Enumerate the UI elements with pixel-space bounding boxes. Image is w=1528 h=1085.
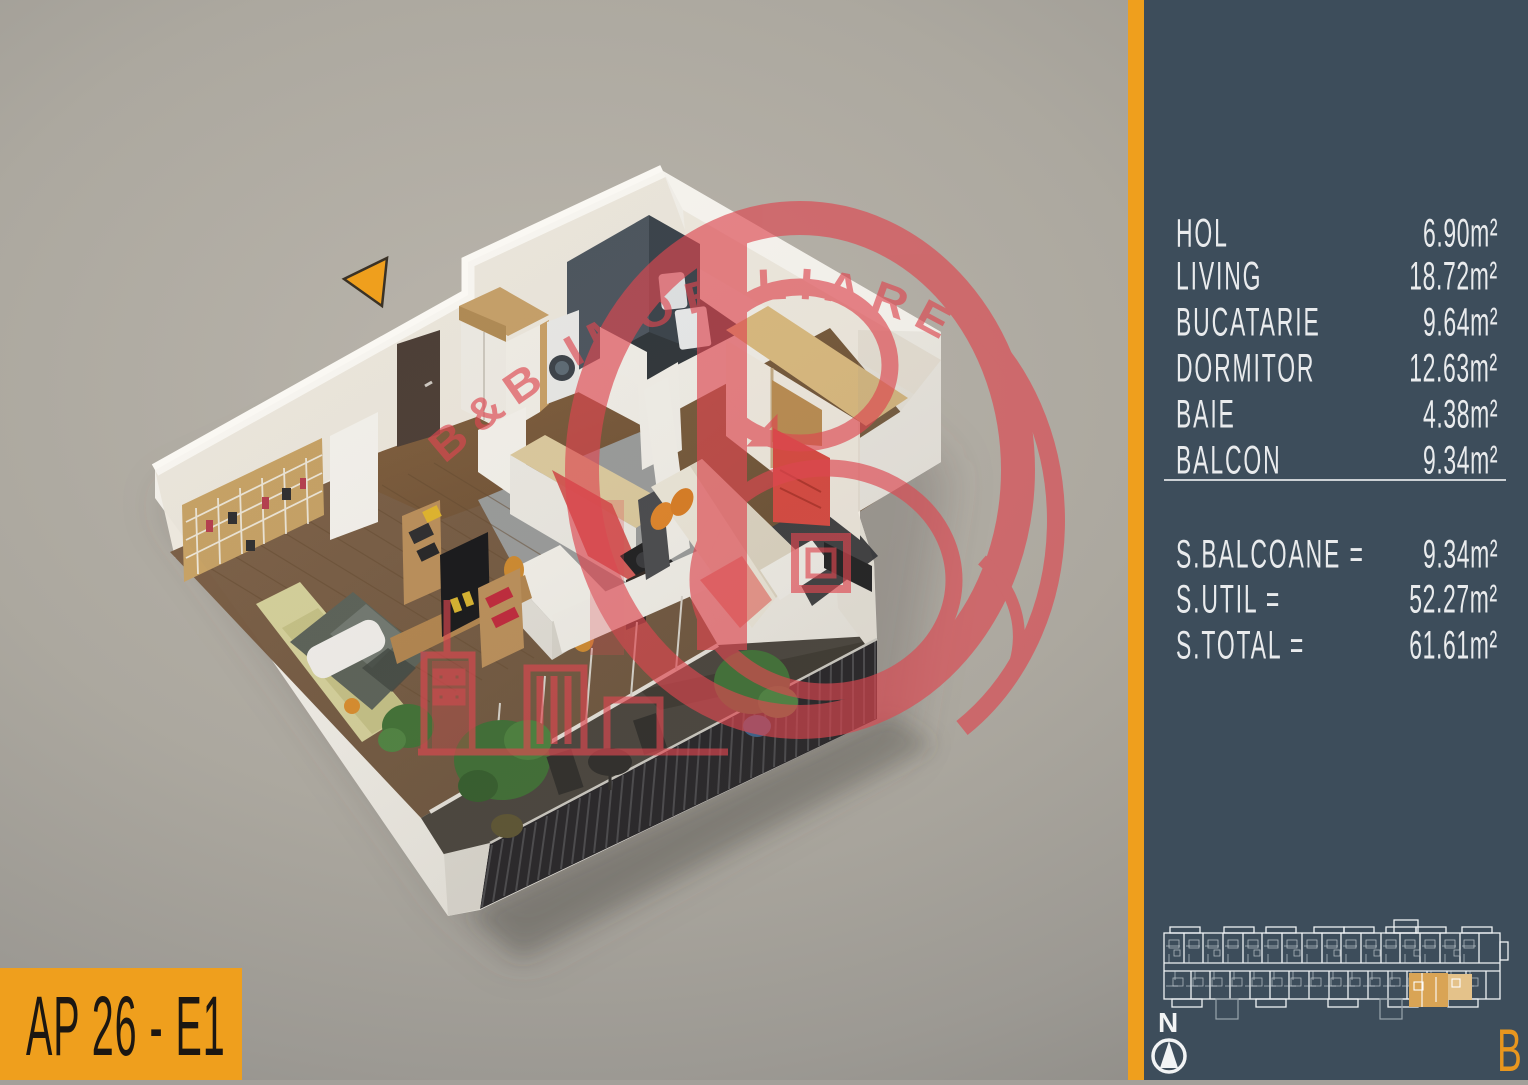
svg-text:N: N (1158, 1007, 1178, 1038)
